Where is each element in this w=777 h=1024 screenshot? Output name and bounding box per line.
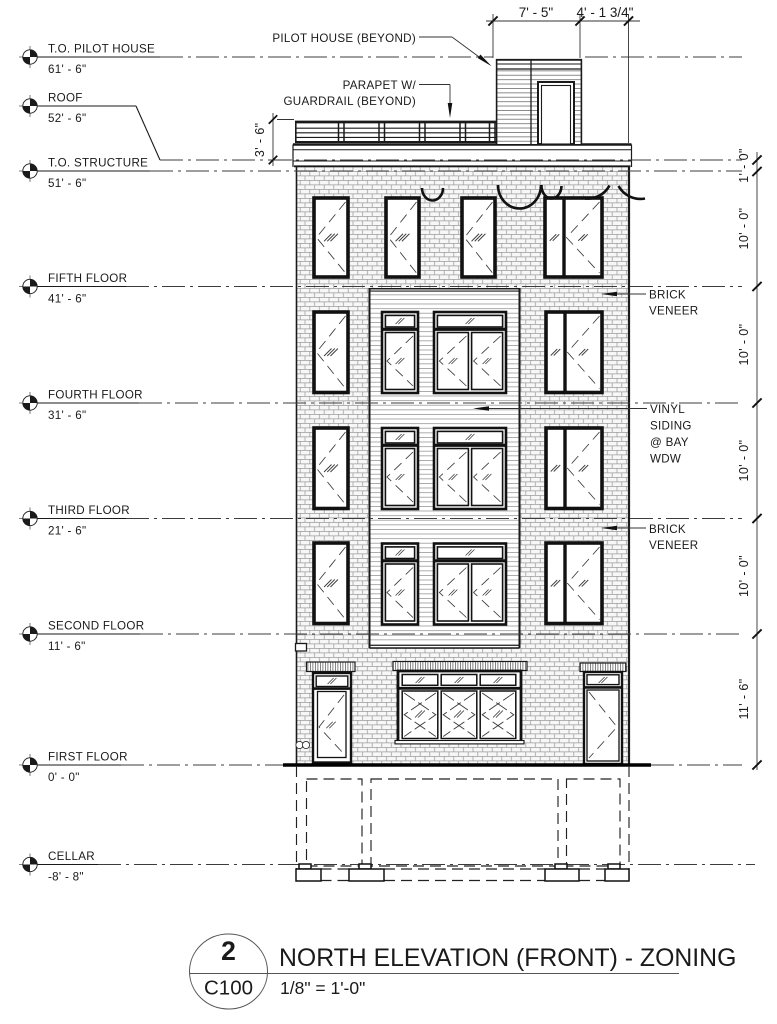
svg-text:THIRD FLOOR: THIRD FLOOR xyxy=(48,504,130,517)
svg-text:10' - 0": 10' - 0" xyxy=(737,208,751,250)
svg-text:4' - 1 3/4": 4' - 1 3/4" xyxy=(577,5,634,20)
svg-text:FIRST FLOOR: FIRST FLOOR xyxy=(48,751,128,764)
svg-text:10' - 0": 10' - 0" xyxy=(737,555,751,597)
svg-text:SIDING: SIDING xyxy=(650,420,692,433)
svg-text:WDW: WDW xyxy=(650,453,681,466)
svg-text:-8' - 8": -8' - 8" xyxy=(48,871,84,884)
svg-text:61' - 6": 61' - 6" xyxy=(48,63,86,76)
svg-text:T.O. PILOT HOUSE: T.O. PILOT HOUSE xyxy=(48,43,155,56)
svg-text:CELLAR: CELLAR xyxy=(48,850,95,863)
svg-text:PILOT HOUSE (BEYOND): PILOT HOUSE (BEYOND) xyxy=(272,32,416,45)
svg-text:BRICK: BRICK xyxy=(649,523,686,536)
svg-text:0' - 0": 0' - 0" xyxy=(48,771,80,784)
svg-text:21' - 6": 21' - 6" xyxy=(48,525,86,538)
svg-text:VINYL: VINYL xyxy=(650,403,685,416)
svg-text:VENEER: VENEER xyxy=(649,539,698,552)
svg-text:SECOND FLOOR: SECOND FLOOR xyxy=(48,620,144,633)
svg-text:PARAPET W/: PARAPET W/ xyxy=(343,79,417,92)
svg-text:ROOF: ROOF xyxy=(48,92,83,105)
svg-text:BRICK: BRICK xyxy=(649,289,686,302)
svg-text:FOURTH FLOOR: FOURTH FLOOR xyxy=(48,389,143,402)
svg-text:11' - 6": 11' - 6" xyxy=(48,640,86,653)
svg-text:10' - 0": 10' - 0" xyxy=(737,440,751,482)
svg-text:3' - 6": 3' - 6" xyxy=(253,122,267,157)
svg-text:1' - 0": 1' - 0" xyxy=(737,148,751,183)
svg-text:7' - 5": 7' - 5" xyxy=(519,5,554,20)
svg-text:10' - 0": 10' - 0" xyxy=(737,324,751,366)
svg-text:2: 2 xyxy=(221,936,236,966)
svg-text:@ BAY: @ BAY xyxy=(650,436,689,449)
svg-text:FIFTH FLOOR: FIFTH FLOOR xyxy=(48,272,127,285)
svg-text:1/8" = 1'-0": 1/8" = 1'-0" xyxy=(280,978,365,998)
svg-text:C100: C100 xyxy=(204,977,253,1000)
svg-text:31' - 6": 31' - 6" xyxy=(48,409,86,422)
svg-text:NORTH ELEVATION (FRONT) - ZONI: NORTH ELEVATION (FRONT) - ZONING xyxy=(279,945,736,972)
svg-text:51' - 6": 51' - 6" xyxy=(48,177,86,190)
svg-text:VENEER: VENEER xyxy=(649,305,698,318)
svg-text:52' - 6": 52' - 6" xyxy=(48,112,86,125)
svg-text:GUARDRAIL (BEYOND): GUARDRAIL (BEYOND) xyxy=(283,95,416,108)
svg-text:41' - 6": 41' - 6" xyxy=(48,293,86,306)
svg-text:T.O. STRUCTURE: T.O. STRUCTURE xyxy=(48,157,148,170)
svg-text:11' - 6": 11' - 6" xyxy=(737,678,751,719)
